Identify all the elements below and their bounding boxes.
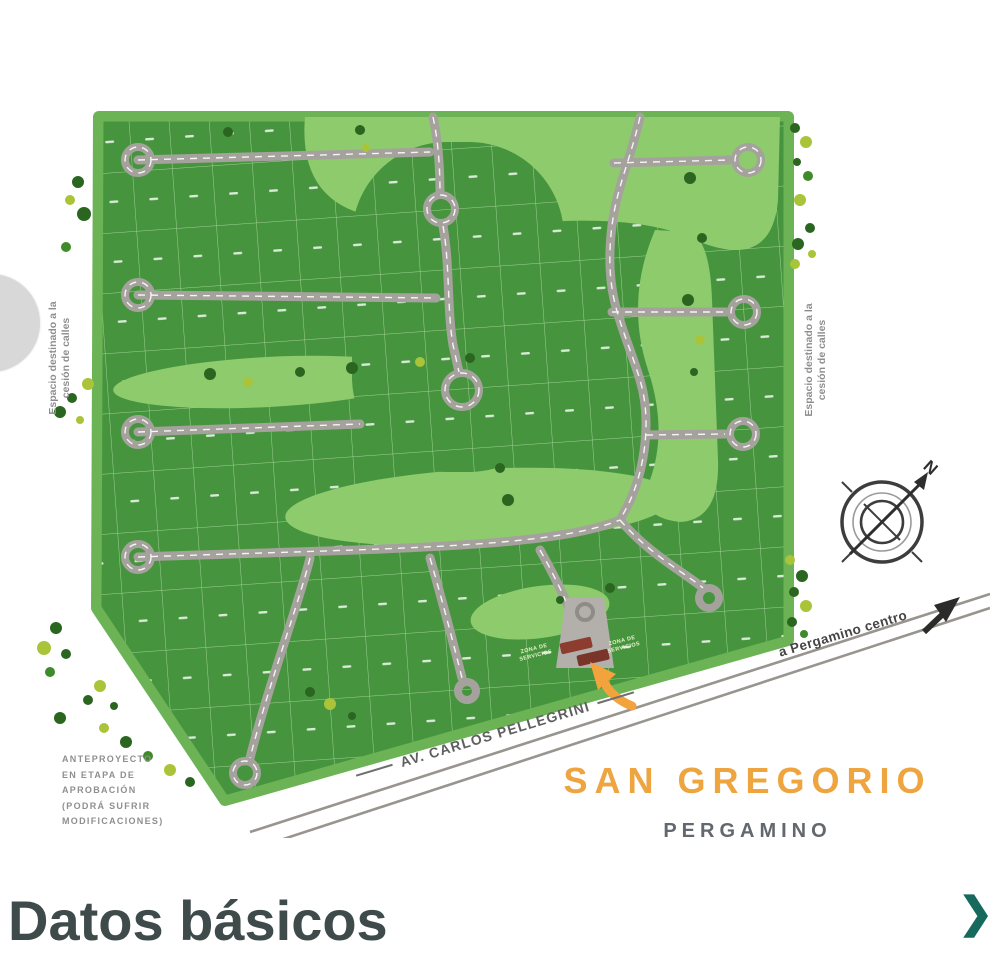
easement-note-right: Espacio destinado a la cesión de calles [803, 275, 829, 445]
disclaimer-note: ANTEPROYECTO EN ETAPA DE APROBACIÓN (POD… [62, 752, 164, 830]
lot-blocks [352, 142, 564, 472]
compass-icon [842, 472, 928, 562]
masterplan-map [0, 0, 990, 838]
project-subtitle: PERGAMINO [515, 820, 980, 838]
masterplan-photo[interactable]: Espacio destinado a la cesión de calles … [0, 0, 990, 838]
easement-note-left: Espacio destinado a la cesión de calles [47, 273, 73, 443]
section-title-datos-basicos: Datos básicos [8, 888, 388, 953]
project-title: SAN GREGORIO [515, 760, 980, 802]
gatehouse-icon [556, 598, 614, 668]
section-chevron-icon[interactable]: ❯ [958, 888, 990, 937]
